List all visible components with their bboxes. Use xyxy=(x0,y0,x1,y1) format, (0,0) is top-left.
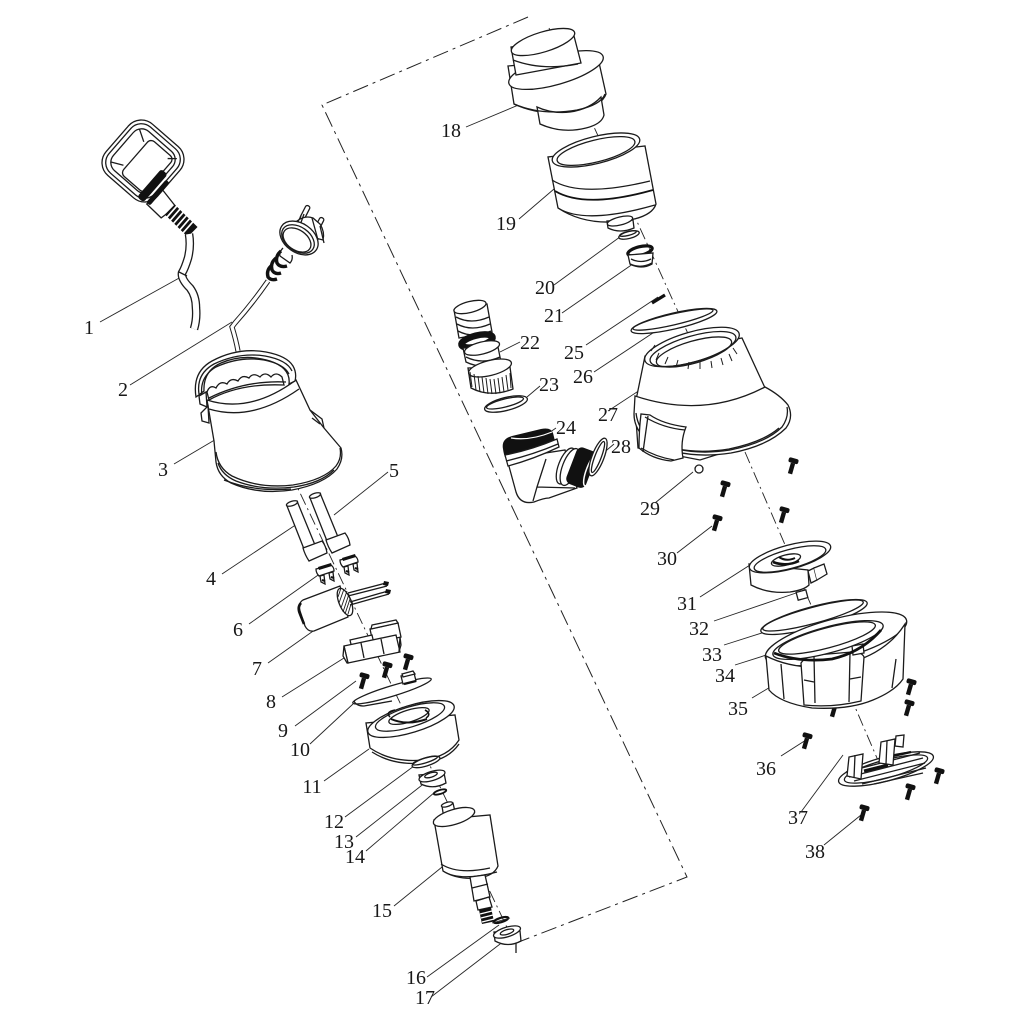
svg-text:3: 3 xyxy=(158,459,168,481)
svg-text:24: 24 xyxy=(556,417,576,439)
svg-text:37: 37 xyxy=(788,807,808,829)
svg-text:31: 31 xyxy=(677,593,697,615)
svg-text:9: 9 xyxy=(278,720,288,742)
svg-text:2: 2 xyxy=(118,379,128,401)
svg-text:4: 4 xyxy=(206,568,216,590)
svg-text:20: 20 xyxy=(535,277,555,299)
svg-text:28: 28 xyxy=(611,436,631,458)
svg-text:35: 35 xyxy=(728,698,748,720)
svg-text:17: 17 xyxy=(415,987,435,1009)
svg-text:26: 26 xyxy=(573,366,593,388)
svg-text:16: 16 xyxy=(406,967,426,989)
svg-text:30: 30 xyxy=(657,548,677,570)
svg-text:1: 1 xyxy=(84,317,94,339)
svg-text:6: 6 xyxy=(233,619,243,641)
svg-text:10: 10 xyxy=(290,739,310,761)
svg-text:5: 5 xyxy=(389,460,399,482)
svg-text:19: 19 xyxy=(496,213,516,235)
svg-text:36: 36 xyxy=(756,758,776,780)
svg-text:33: 33 xyxy=(702,644,722,666)
svg-text:23: 23 xyxy=(539,374,559,396)
svg-text:12: 12 xyxy=(324,811,344,833)
svg-text:27: 27 xyxy=(598,404,618,426)
svg-text:15: 15 xyxy=(372,900,392,922)
svg-text:18: 18 xyxy=(441,120,461,142)
svg-text:32: 32 xyxy=(689,618,709,640)
svg-text:21: 21 xyxy=(544,305,564,327)
svg-text:7: 7 xyxy=(252,658,262,680)
svg-text:14: 14 xyxy=(345,846,365,868)
svg-text:11: 11 xyxy=(302,776,321,798)
svg-text:34: 34 xyxy=(715,665,735,687)
svg-text:25: 25 xyxy=(564,342,584,364)
svg-text:22: 22 xyxy=(520,332,540,354)
svg-text:38: 38 xyxy=(805,841,825,863)
svg-text:8: 8 xyxy=(266,691,276,713)
